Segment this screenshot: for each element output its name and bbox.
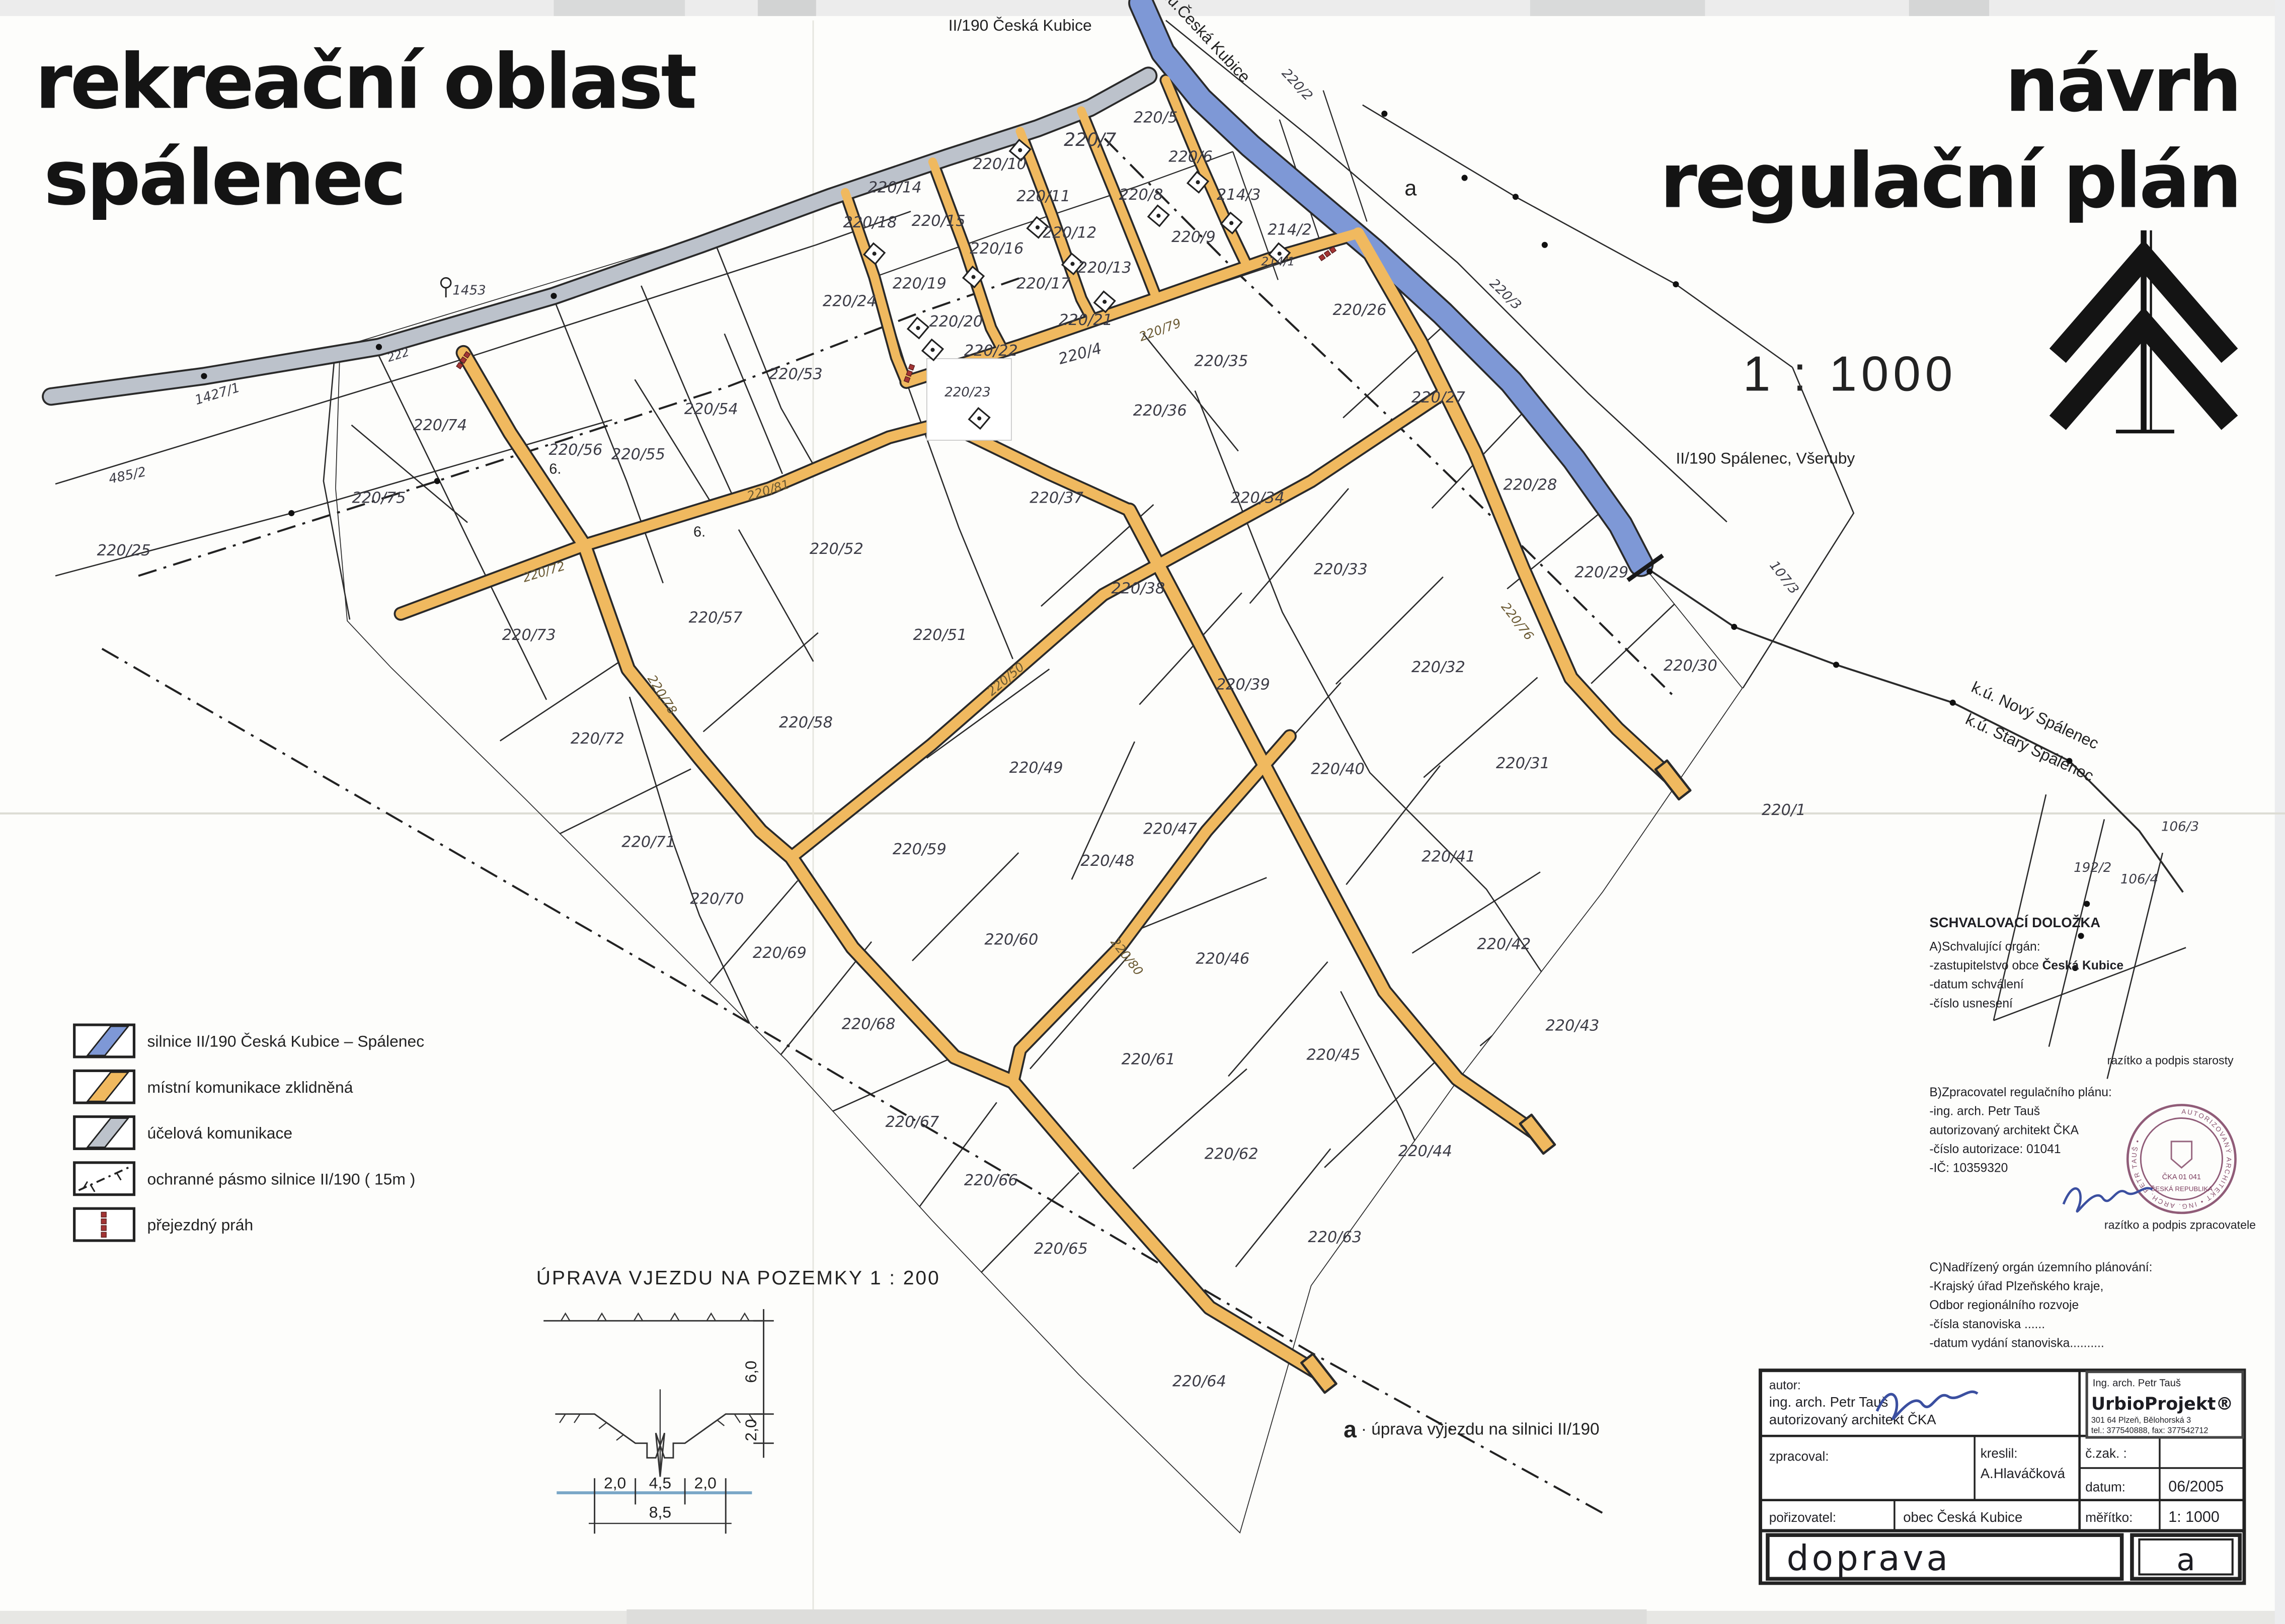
autor-sub: autorizovaný architekt ČKA — [1769, 1412, 1936, 1427]
stamp-studio-name: UrbioProjekt® — [2091, 1394, 2233, 1414]
kreslil-label: kreslil: — [1981, 1446, 2018, 1461]
parcel-label: 220/61 — [1122, 1050, 1175, 1068]
road-parcel-label: 220/81 — [745, 477, 791, 504]
boundary-dot — [201, 373, 207, 379]
parcel-label: 220/40 — [1311, 761, 1365, 778]
legend-label: místní komunikace zklidněná — [147, 1078, 353, 1096]
legend-item-gray: účelová komunikace — [74, 1117, 292, 1149]
map-annotation: II/190 Česká Kubice — [949, 16, 1092, 34]
boundary-dot — [1731, 624, 1737, 630]
parcel-label: 220/6 — [1168, 148, 1213, 166]
parcel-label: 1453 — [452, 283, 486, 298]
parcel-label: 220/17 — [1016, 275, 1071, 293]
parcel-label: 220/16 — [970, 240, 1023, 258]
road-parcel-label: 220/76 — [1499, 600, 1537, 643]
page-title-line2: spálenec — [44, 134, 405, 222]
parcel-label: 220/21 — [1059, 311, 1113, 329]
tree-icon — [441, 278, 451, 297]
parcel-label: 220/25 — [97, 542, 151, 559]
map-annotation: 6. — [693, 524, 705, 540]
parcel-label: 220/8 — [1119, 186, 1163, 204]
cadastre-boundary-line — [1641, 564, 2183, 892]
parcel-label: 220/33 — [1314, 561, 1368, 579]
parcel-division-line — [1236, 1149, 1331, 1267]
approval-line: A)Schvalující orgán: — [1929, 940, 2040, 953]
parcel-label: 220/28 — [1503, 476, 1557, 494]
parcel-label: 220/66 — [964, 1172, 1018, 1189]
parcel-label: 220/68 — [842, 1016, 896, 1033]
approval-line: -číslo autorizace: 01041 — [1929, 1143, 2061, 1156]
parcel-label: 220/14 — [868, 179, 922, 196]
parcel-division-line — [500, 657, 626, 741]
parcel-division-line — [739, 530, 813, 662]
approval-block: SCHVALOVACÍ DOLOŽKA A)Schvalující orgán:… — [1929, 915, 2256, 1350]
parcel-label: 220/49 — [1009, 759, 1063, 777]
boundary-dot — [550, 293, 557, 299]
boundary-dot — [434, 478, 440, 484]
approval-line: -Krajský úřad Plzeňského kraje, — [1929, 1279, 2103, 1293]
parcel-label: 220/29 — [1574, 563, 1628, 581]
parcel-label: 220/75 — [352, 490, 406, 507]
turnaround-hammerhead — [1656, 761, 1690, 799]
parcel-label: 220/30 — [1664, 657, 1717, 675]
exit-note: a · úprava výjezdu na silnici II/190 — [1344, 1416, 1599, 1442]
parcel-label: 220/39 — [1216, 676, 1270, 694]
parcel-label: 220/71 — [621, 834, 675, 851]
legend-label: účelová komunikace — [147, 1124, 293, 1142]
approval-heading: SCHVALOVACÍ DOLOŽKA — [1929, 915, 2100, 930]
parcel-label: 220/62 — [1205, 1146, 1258, 1163]
legend-item-orange: místní komunikace zklidněná — [74, 1071, 353, 1103]
parcel-label: 220/65 — [1034, 1240, 1088, 1258]
parcel-label: 220/35 — [1194, 352, 1248, 370]
approval-line: -čísla stanoviska ...... — [1929, 1318, 2045, 1331]
parcel-label: 106/3 — [2161, 820, 2199, 835]
dim-85: 8,5 — [649, 1503, 671, 1521]
parcel-label: 220/26 — [1333, 301, 1387, 319]
parcel-label: 220/3 — [1486, 276, 1524, 313]
parcel-label: 220/12 — [1043, 224, 1096, 241]
parcel-label: 214/1 — [1261, 255, 1295, 268]
dim-20a: 2,0 — [604, 1474, 626, 1492]
dim-60: 6,0 — [742, 1361, 760, 1383]
building-symbol — [1148, 205, 1169, 226]
parcel-label: 220/58 — [779, 714, 833, 732]
parcel-label: 220/18 — [843, 214, 897, 231]
legend-label: ochranné pásmo silnice II/190 ( 15m ) — [147, 1170, 416, 1188]
parcel-division-line — [1143, 333, 1238, 451]
approval-line: -datum schválení — [1929, 978, 2024, 992]
parcel-label: 220/22 — [964, 342, 1018, 360]
parcel-label: 220/38 — [1111, 580, 1165, 597]
porizovatel-value: obec Česká Kubice — [1903, 1509, 2022, 1525]
building-symbol — [922, 340, 943, 360]
parcel-label: 220/15 — [912, 212, 966, 230]
approval-line: B)Zpracovatel regulačního plánu: — [1929, 1086, 2111, 1099]
parcel-label: 220/73 — [502, 626, 556, 644]
parcel-label: 220/5 — [1134, 109, 1178, 126]
boundary-dot — [1833, 662, 1839, 668]
plan-type-line1: návrh — [2005, 40, 2240, 129]
parcel-division-line — [351, 425, 467, 523]
parcel-label: 220/2 — [1279, 66, 1315, 104]
svg-text:AUTORIZOVANÝ ARCHITEKT • ING.: AUTORIZOVANÝ ARCHITEKT • ING. ARCH. PETR… — [2130, 1108, 2233, 1210]
scanned-regulation-plan-page: { "header": { "title_line1": "rekreační … — [0, 0, 2285, 1624]
parcel-label: 220/52 — [810, 540, 863, 558]
parcel-label: 220/27 — [1411, 389, 1466, 407]
plan-type-line2: regulační plán — [1660, 136, 2240, 225]
czak-label: č.zak. : — [2085, 1446, 2127, 1461]
sheet-letter: a — [2176, 1542, 2195, 1578]
approval-line: -datum vydání stanoviska.......... — [1929, 1336, 2104, 1350]
title-block: autor: ing. arch. Petr Tauš autorizovaný… — [1760, 1370, 2244, 1583]
parcel-label: 192/2 — [2074, 860, 2111, 875]
parcel-label: 220/51 — [913, 626, 967, 644]
parcel-label: 106/4 — [2120, 872, 2158, 887]
map-annotation: II/190 Spálenec, Všeruby — [1676, 449, 1855, 467]
parcel-label: 220/37 — [1030, 490, 1084, 507]
parcel-label: 220/24 — [823, 293, 877, 310]
parcel-label: 220/41 — [1422, 848, 1475, 866]
datum-label: datum: — [2085, 1479, 2125, 1494]
stamp-cka-number: ČKA 01 041 — [2162, 1173, 2201, 1181]
porizovatel-label: pořizovatel: — [1769, 1510, 1836, 1525]
zpracoval-label: zpracoval: — [1769, 1448, 1829, 1464]
parcel-label: 220/57 — [688, 609, 743, 626]
parcel-label: 220/56 — [548, 441, 602, 459]
map-canvas: rekreační oblast spálenec návrh regulačn… — [0, 0, 2285, 1624]
parcel-division-line — [1030, 954, 1130, 1069]
parcel-label: 220/31 — [1496, 755, 1550, 772]
parcel-label: 107/3 — [1766, 558, 1801, 598]
parcel-division-line — [1346, 766, 1440, 885]
boundary-dot — [288, 510, 294, 516]
approval-line: -IČ: 10359320 — [1929, 1161, 2008, 1175]
parcel-label: 220/32 — [1411, 659, 1465, 676]
parcel-label: 220/9 — [1171, 228, 1216, 246]
parcel-label: 214/3 — [1217, 186, 1261, 204]
parcel-label: 485/2 — [107, 464, 147, 487]
parcel-label: 220/4 — [1057, 340, 1104, 368]
parcel-label: 220/53 — [769, 365, 823, 383]
stamp-ring-text: AUTORIZOVANÝ ARCHITEKT • ING. ARCH. PETR… — [2130, 1108, 2233, 1210]
studio-logo-icon — [2058, 230, 2230, 432]
parcel-label: 220/23 — [944, 385, 991, 400]
stamp-note-processor: razítko a podpis zpracovatele — [2104, 1219, 2256, 1232]
parcel-label: 220/1 — [1762, 801, 1806, 819]
parcel-label: 220/46 — [1196, 950, 1249, 967]
local-road — [401, 423, 944, 614]
parcel-division-line — [821, 1054, 960, 1116]
entrance-detail: ÚPRAVA VJEZDU NA POZEMKY 1 : 200 6,0 2,0… — [536, 1267, 940, 1534]
approval-line: -zastupitelstvo obce Česká Kubice — [1929, 958, 2123, 972]
parcel-division-line — [635, 379, 715, 508]
exit-note-marker: a — [1344, 1416, 1357, 1442]
legend-label: přejezdný práh — [147, 1216, 254, 1234]
parcel-division-line — [555, 769, 691, 836]
boundary-dot — [1513, 194, 1519, 200]
legend-label: silnice II/190 Česká Kubice – Spálenec — [147, 1032, 425, 1050]
parcel-label: 214/2 — [1268, 221, 1312, 239]
parcel-label: 220/20 — [929, 313, 983, 331]
parcel-label: 220/34 — [1231, 490, 1285, 507]
parcel-label: 220/7 — [1064, 129, 1116, 150]
dim-20b: 2,0 — [694, 1474, 717, 1492]
exit-note-text: · úprava výjezdu na silnici II/190 — [1361, 1420, 1600, 1438]
boundary-dot — [376, 344, 382, 350]
meritko-label: měřítko: — [2085, 1510, 2133, 1525]
boundary-dot — [1646, 569, 1652, 575]
boundary-dot — [2078, 933, 2084, 939]
stamp-address: 301 64 Plzeň, Bělohorská 3 — [2091, 1416, 2191, 1425]
boundary-dot — [2084, 901, 2090, 907]
parcel-label: 220/54 — [684, 400, 738, 418]
parcel-label: 220/59 — [893, 841, 947, 858]
parcel-label: 220/11 — [1016, 188, 1070, 205]
boundary-dot — [1461, 175, 1467, 181]
parcel-label: 220/19 — [893, 275, 947, 293]
parcel-label: 220/64 — [1172, 1373, 1226, 1391]
parcel-label: 220/69 — [753, 944, 807, 962]
meritko-value: 1: 1000 — [2168, 1508, 2219, 1525]
parcel-division-line — [927, 669, 1050, 758]
approval-line: -číslo usnesení — [1929, 997, 2013, 1010]
parcel-label: 220/60 — [984, 931, 1038, 949]
parcel-label: 220/72 — [571, 730, 624, 748]
legend: silnice II/190 Česká Kubice – Spálenecmí… — [74, 1025, 425, 1241]
urbioprojekt-stamp: Ing. arch. Petr Tauš UrbioProjekt® 301 6… — [2087, 1372, 2243, 1437]
approval-line: autorizovaný architekt ČKA — [1929, 1123, 2079, 1137]
legend-item-dash: ochranné pásmo silnice II/190 ( 15m ) — [74, 1163, 416, 1195]
parcel-label: 220/42 — [1477, 935, 1531, 953]
approval-line: -ing. arch. Petr Tauš — [1929, 1105, 2040, 1118]
autor-label: autor: — [1769, 1378, 1801, 1392]
stamp-country: ČESKÁ REPUBLIKA — [2151, 1185, 2213, 1192]
page-title-line1: rekreační oblast — [35, 37, 696, 126]
road-parcel-label: 220/50 — [984, 660, 1027, 699]
drawing-name: doprava — [1787, 1538, 1951, 1579]
road-parcel-label: 220/79 — [1137, 315, 1183, 344]
boundary-dot — [1950, 700, 1956, 706]
dim-45: 4,5 — [649, 1474, 671, 1492]
parcel-label: 220/63 — [1308, 1229, 1362, 1246]
map-annotation: 6. — [549, 461, 561, 477]
boundary-dot — [1381, 111, 1387, 117]
parcel-label: 220/44 — [1398, 1143, 1452, 1160]
detail-title: ÚPRAVA VJEZDU NA POZEMKY 1 : 200 — [536, 1267, 940, 1289]
approval-line: Odbor regionálního rozvoje — [1929, 1298, 2079, 1312]
parcel-label: 220/67 — [885, 1113, 939, 1131]
stamp-note-mayor: razítko a podpis starosty — [2107, 1053, 2234, 1067]
parcel-label: 220/13 — [1078, 259, 1132, 277]
parcel-label: 220/55 — [611, 446, 665, 463]
parcel-label: 220/45 — [1306, 1046, 1360, 1064]
approval-line: C)Nadřízený orgán územního plánování: — [1929, 1261, 2152, 1274]
local-road — [1358, 233, 1673, 780]
parcel-label: 220/36 — [1133, 402, 1187, 420]
signature — [2064, 1188, 2153, 1211]
parcel-label: 220/74 — [413, 417, 467, 434]
boundary-dot — [1542, 242, 1548, 248]
autor-name: ing. arch. Petr Tauš — [1769, 1394, 1888, 1410]
architect-stamp: AUTORIZOVANÝ ARCHITEKT • ING. ARCH. PETR… — [2128, 1105, 2235, 1212]
kreslil-value: A.Hlaváčková — [1981, 1466, 2066, 1481]
parcel-label: 220/10 — [973, 155, 1027, 173]
stamp-architect-name: Ing. arch. Petr Tauš — [2093, 1378, 2181, 1389]
local-road — [1013, 736, 1290, 1082]
parcel-label: 220/48 — [1081, 852, 1135, 870]
legend-item-prah: přejezdný práh — [74, 1208, 254, 1241]
map-annotation: a — [1404, 176, 1417, 200]
stamp-phone: tel.: 377540888, fax: 377542712 — [2091, 1426, 2209, 1435]
parcel-label: 220/70 — [690, 890, 744, 908]
parcel-label: 220/43 — [1545, 1017, 1599, 1035]
building-symbol — [908, 318, 928, 339]
legend-item-blue: silnice II/190 Česká Kubice – Spálenec — [74, 1025, 425, 1057]
datum-value: 06/2005 — [2168, 1478, 2224, 1495]
parcel-label: 220/47 — [1143, 820, 1198, 838]
dim-20v: 2,0 — [742, 1419, 760, 1441]
boundary-dot — [1673, 281, 1679, 287]
